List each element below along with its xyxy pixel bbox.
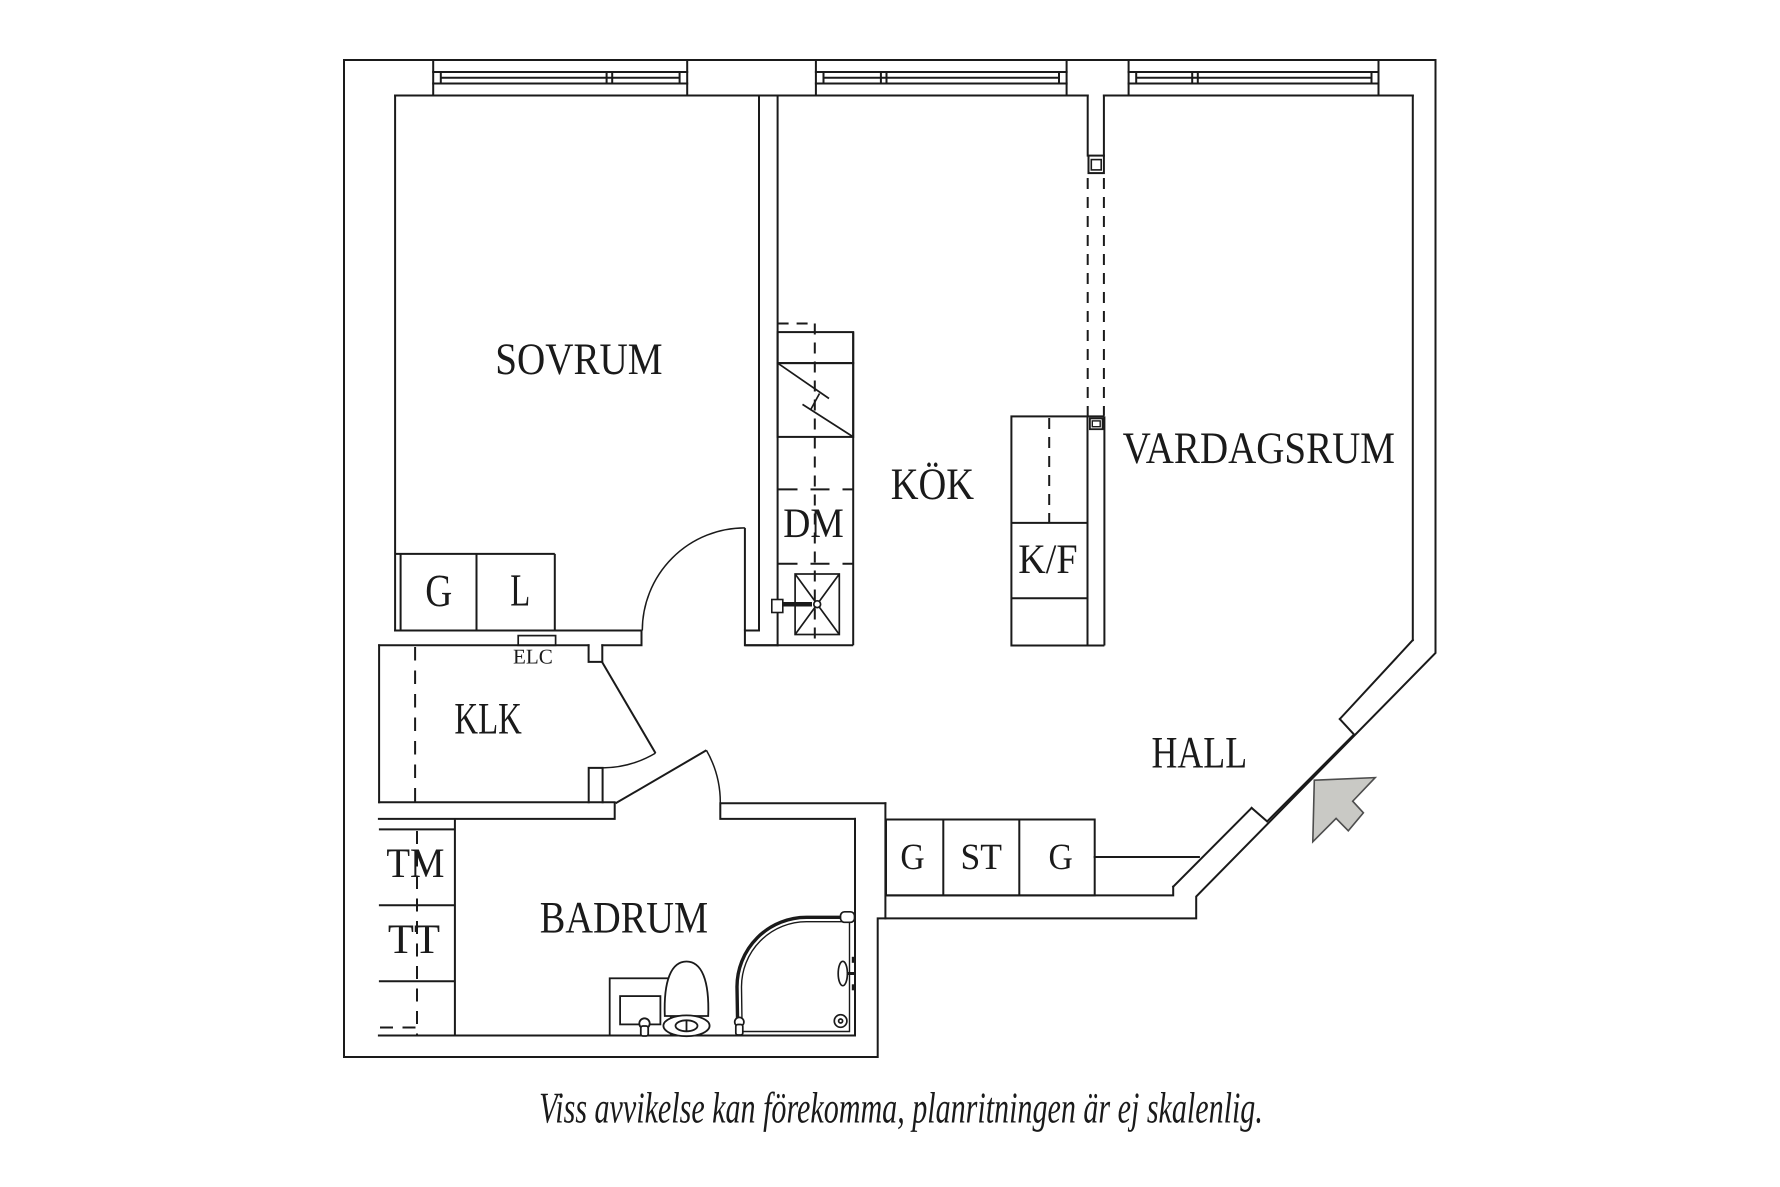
svg-text:VARDAGSRUM: VARDAGSRUM (1123, 423, 1395, 473)
svg-text:KÖK: KÖK (891, 459, 975, 509)
svg-text:HALL: HALL (1152, 728, 1248, 778)
svg-text:L: L (510, 565, 530, 616)
svg-text:TM: TM (386, 841, 444, 887)
svg-text:TT: TT (388, 917, 440, 963)
svg-text:ELC: ELC (513, 645, 553, 669)
svg-text:G: G (1049, 837, 1073, 878)
svg-text:KLK: KLK (454, 694, 522, 744)
svg-text:G: G (900, 837, 924, 878)
svg-text:Viss avvikelse kan förekomma,: Viss avvikelse kan förekomma, planritnin… (539, 1084, 1263, 1133)
svg-text:K/F: K/F (1018, 537, 1077, 583)
svg-text:SOVRUM: SOVRUM (495, 334, 662, 384)
svg-text:ST: ST (960, 837, 1002, 878)
svg-text:BADRUM: BADRUM (540, 893, 708, 943)
svg-text:G: G (425, 565, 452, 616)
svg-text:DM: DM (783, 501, 844, 547)
